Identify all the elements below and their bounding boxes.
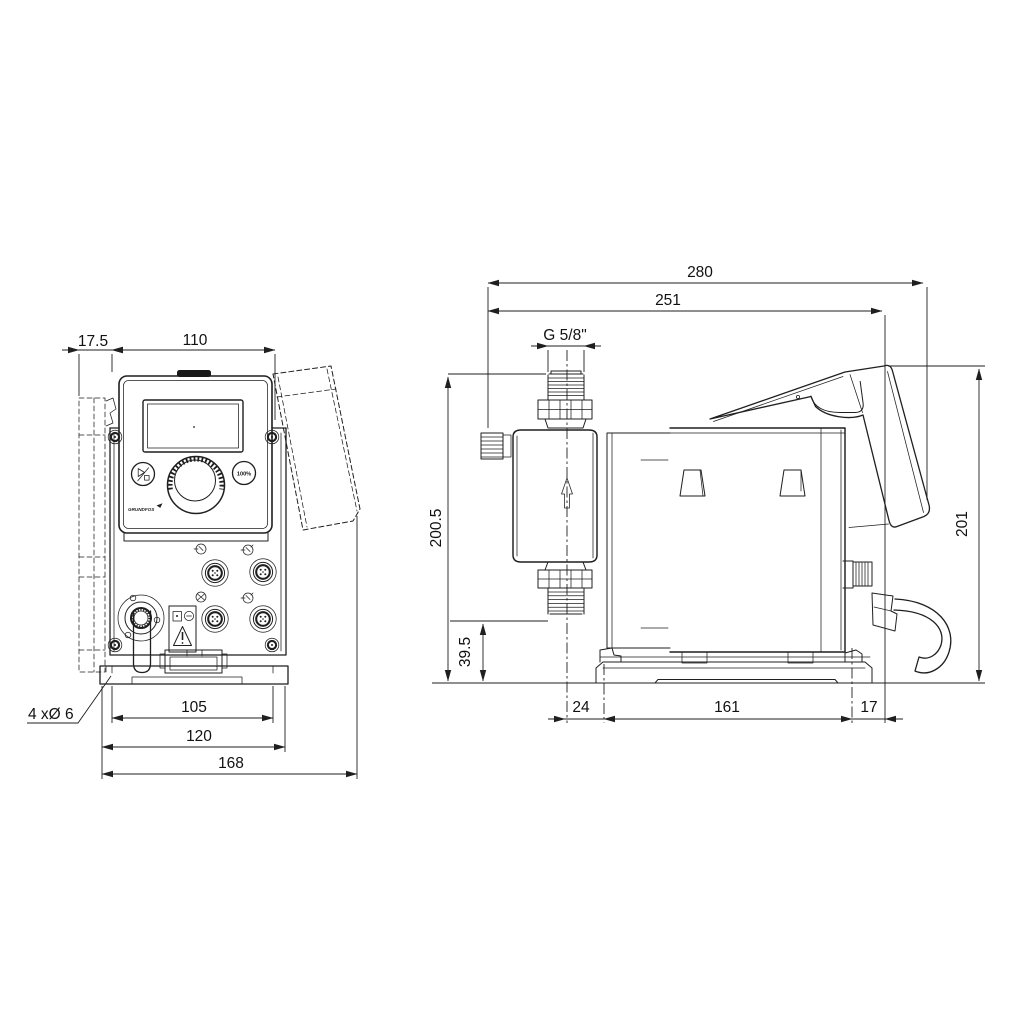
vent-clip (680, 470, 805, 496)
mounting-clip (160, 650, 227, 673)
base-plate-side (596, 648, 872, 683)
start-stop-button[interactable] (132, 463, 155, 486)
side-valve (481, 433, 511, 459)
control-panel: 100% GRUNDFOS (119, 370, 272, 533)
dim-rear-slot-to-edge: 17 (860, 699, 877, 716)
dim-valve-to-base: 39.5 (457, 637, 474, 667)
power-cable-side (894, 599, 951, 673)
dimensional-drawing-page: 100% GRUNDFOS (0, 0, 1024, 1024)
display (143, 400, 243, 452)
cover-handle-recess (811, 382, 863, 413)
dim-overall-height: 200.5 (428, 509, 445, 548)
side-view: 280 251 G 5/8" 200.5 39.5 201 24 161 17 (428, 264, 985, 723)
brand-logo: GRUNDFOS (128, 503, 163, 512)
dosing-head (481, 371, 597, 614)
motor-housing-side (670, 428, 845, 663)
connector-sockets (194, 544, 276, 632)
connector-socket (250, 559, 276, 585)
dosing-pump-dimensional-drawing: 100% GRUNDFOS (0, 0, 1024, 1024)
start-stop-icon (138, 468, 149, 481)
pump-housing-front (100, 428, 288, 684)
dim-base-slot-spacing: 161 (714, 699, 740, 716)
dim-plate-width: 120 (186, 728, 212, 745)
dim-housing-width: 110 (183, 332, 208, 349)
cover-latch-tab (177, 370, 211, 377)
svg-text:4 xØ 6: 4 xØ 6 (28, 706, 74, 723)
dim-slot-spacing-front: 105 (181, 699, 207, 716)
svg-text:GRUNDFOS: GRUNDFOS (128, 507, 155, 512)
dim-depth-to-cover: 251 (655, 292, 681, 309)
connector-marking-icon (194, 544, 253, 603)
warning-label (169, 606, 196, 652)
side-dimensions: 280 251 G 5/8" 200.5 39.5 201 24 161 17 (428, 264, 985, 723)
warning-triangle-icon (174, 627, 192, 646)
connector-socket (202, 560, 228, 586)
mounting-hole-callout: 4 xØ 6 (27, 676, 111, 723)
drive-module (607, 433, 670, 648)
rear-cable-gland (843, 561, 951, 673)
front-dimensions: 17.5 110 105 120 168 4 xØ 6 (27, 332, 357, 779)
dim-cover-height: 201 (954, 511, 971, 537)
dim-overall-depth: 280 (687, 264, 713, 281)
hundred-percent-label: 100% (237, 472, 251, 478)
click-wheel[interactable] (168, 457, 225, 514)
base-plate-front (100, 666, 288, 684)
open-cover-side (710, 365, 929, 527)
cable-gland-front (118, 595, 164, 673)
dim-connection-thread: G 5/8" (543, 327, 586, 344)
hundred-percent-button[interactable]: 100% (233, 462, 256, 485)
front-view: 100% GRUNDFOS (27, 332, 360, 779)
dim-wall-offset: 17.5 (78, 333, 108, 350)
connector-socket (202, 606, 228, 632)
dim-centerline-to-front-slot: 24 (572, 699, 590, 716)
dim-overall-width: 168 (218, 755, 244, 772)
connector-socket (250, 606, 276, 632)
